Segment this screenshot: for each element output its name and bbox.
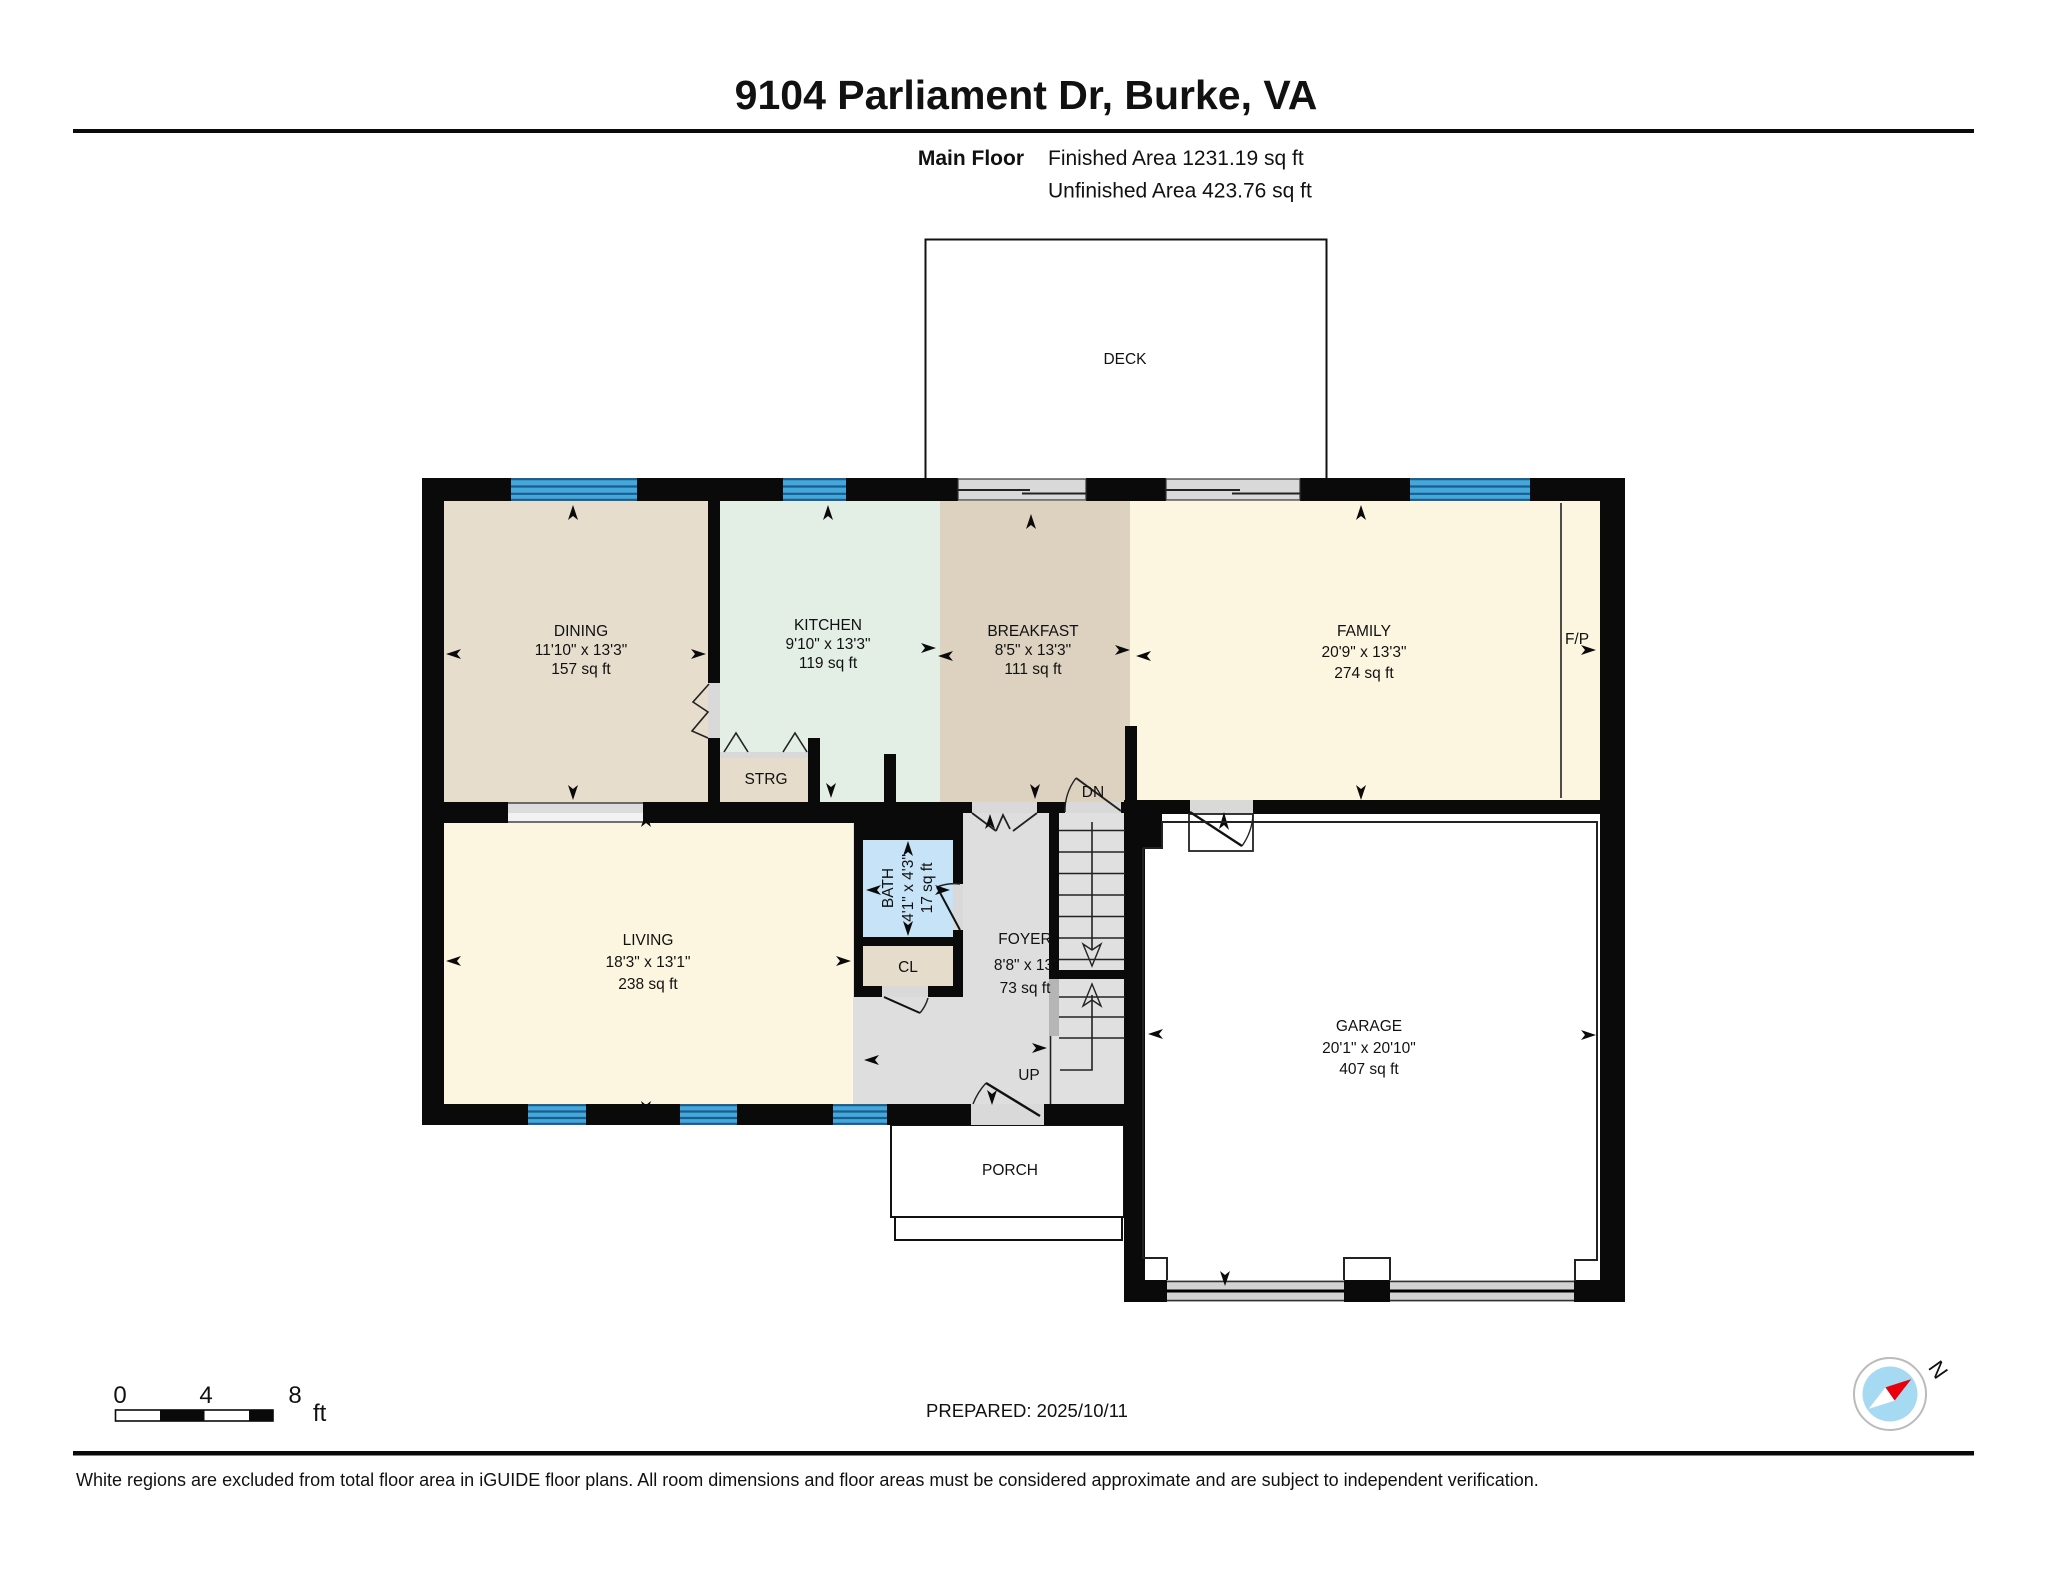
svg-text:4'1" x 4'3": 4'1" x 4'3" (900, 854, 917, 922)
svg-text:FOYER: FOYER (998, 931, 1051, 948)
svg-text:407 sq ft: 407 sq ft (1339, 1061, 1399, 1078)
svg-text:BREAKFAST: BREAKFAST (987, 623, 1079, 640)
svg-text:111 sq ft: 111 sq ft (1004, 661, 1062, 678)
svg-text:18'3" x 13'1": 18'3" x 13'1" (605, 954, 690, 971)
svg-text:PORCH: PORCH (982, 1162, 1038, 1179)
svg-text:9'10" x 13'3": 9'10" x 13'3" (785, 636, 870, 653)
svg-text:9104 Parliament Dr, Burke, VA: 9104 Parliament Dr, Burke, VA (735, 72, 1318, 118)
svg-text:11'10" x 13'3": 11'10" x 13'3" (535, 642, 627, 659)
svg-text:157 sq ft: 157 sq ft (551, 661, 611, 678)
svg-text:STRG: STRG (744, 771, 787, 788)
svg-text:FAMILY: FAMILY (1337, 623, 1391, 640)
svg-text:20'1" x 20'10": 20'1" x 20'10" (1322, 1040, 1416, 1057)
svg-text:F/P: F/P (1565, 631, 1589, 648)
svg-text:PREPARED: 2025/10/11: PREPARED: 2025/10/11 (926, 1400, 1128, 1421)
svg-text:Finished Area 1231.19 sq ft: Finished Area 1231.19 sq ft (1048, 147, 1304, 170)
svg-text:Unfinished Area 423.76 sq ft: Unfinished Area 423.76 sq ft (1048, 180, 1312, 203)
svg-text:8'8" x 13': 8'8" x 13' (994, 957, 1056, 974)
svg-text:KITCHEN: KITCHEN (794, 617, 862, 634)
svg-text:White regions are excluded fro: White regions are excluded from total fl… (76, 1470, 1539, 1490)
svg-text:274 sq ft: 274 sq ft (1334, 665, 1394, 682)
svg-text:238 sq ft: 238 sq ft (618, 976, 678, 993)
svg-text:8: 8 (288, 1382, 301, 1409)
svg-text:UP: UP (1018, 1067, 1040, 1084)
svg-text:0: 0 (113, 1382, 126, 1409)
svg-text:Main Floor: Main Floor (918, 147, 1024, 170)
svg-text:8'5" x 13'3": 8'5" x 13'3" (995, 642, 1071, 659)
svg-text:GARAGE: GARAGE (1336, 1018, 1402, 1035)
svg-text:17 sq ft: 17 sq ft (919, 862, 936, 914)
svg-text:20'9" x 13'3": 20'9" x 13'3" (1321, 644, 1406, 661)
svg-text:DINING: DINING (554, 623, 608, 640)
svg-text:DN: DN (1082, 784, 1104, 801)
svg-text:CL: CL (898, 959, 918, 976)
svg-text:73 sq ft: 73 sq ft (1000, 980, 1052, 997)
svg-text:BATH: BATH (880, 868, 897, 908)
svg-text:4: 4 (199, 1382, 212, 1409)
svg-text:119 sq ft: 119 sq ft (799, 655, 858, 672)
svg-text:ft: ft (313, 1400, 327, 1427)
svg-text:DECK: DECK (1103, 351, 1147, 368)
svg-text:LIVING: LIVING (623, 932, 674, 949)
